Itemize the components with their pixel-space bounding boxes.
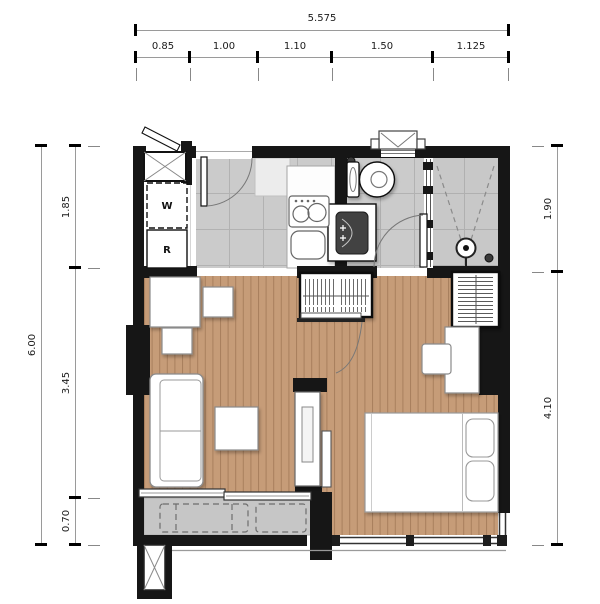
refrigerator-label: R — [163, 245, 171, 256]
hall-wardrobe — [300, 273, 372, 317]
pillow — [466, 461, 494, 501]
sliding-door-track — [297, 318, 365, 322]
wall-right-pillar — [479, 327, 498, 395]
wall-right — [498, 146, 510, 513]
pillow — [466, 419, 494, 457]
wall-partition-upper — [293, 378, 327, 392]
chair — [162, 328, 192, 354]
wall-balcony-right — [310, 492, 332, 560]
coffee-table — [215, 407, 258, 450]
kitchen-corner-cabinet — [255, 158, 290, 196]
chair — [203, 287, 233, 317]
bed — [365, 413, 498, 512]
entry-closet — [144, 152, 186, 181]
sofa — [150, 374, 203, 487]
partition-sliding-panel — [322, 431, 331, 487]
window-corner-post — [497, 535, 507, 546]
kitchen-sink-icon — [291, 231, 325, 259]
toilet-icon — [347, 162, 395, 197]
desk-chair — [422, 344, 451, 374]
stove-icon — [289, 196, 329, 227]
window-mullion — [332, 535, 340, 546]
floor-plan-canvas: 5.575 0.85 1.00 1.10 1.50 1.125 6.00 1.8… — [0, 0, 600, 604]
window-mullion — [406, 535, 414, 546]
washer-label: W — [161, 201, 172, 212]
window-mullion — [483, 535, 491, 546]
washer-box: W — [147, 183, 187, 228]
wall-left-pillar — [126, 325, 150, 395]
refrigerator-box: R — [147, 230, 187, 268]
bathroom-window-icon — [371, 131, 425, 149]
sliding-door-panel — [301, 313, 361, 318]
floor-plan-drawing: W R — [0, 0, 600, 604]
vanity-sink-icon — [328, 204, 376, 261]
bedroom-wardrobe — [452, 272, 499, 327]
side-table — [150, 277, 200, 327]
tv-cabinet — [295, 392, 320, 486]
